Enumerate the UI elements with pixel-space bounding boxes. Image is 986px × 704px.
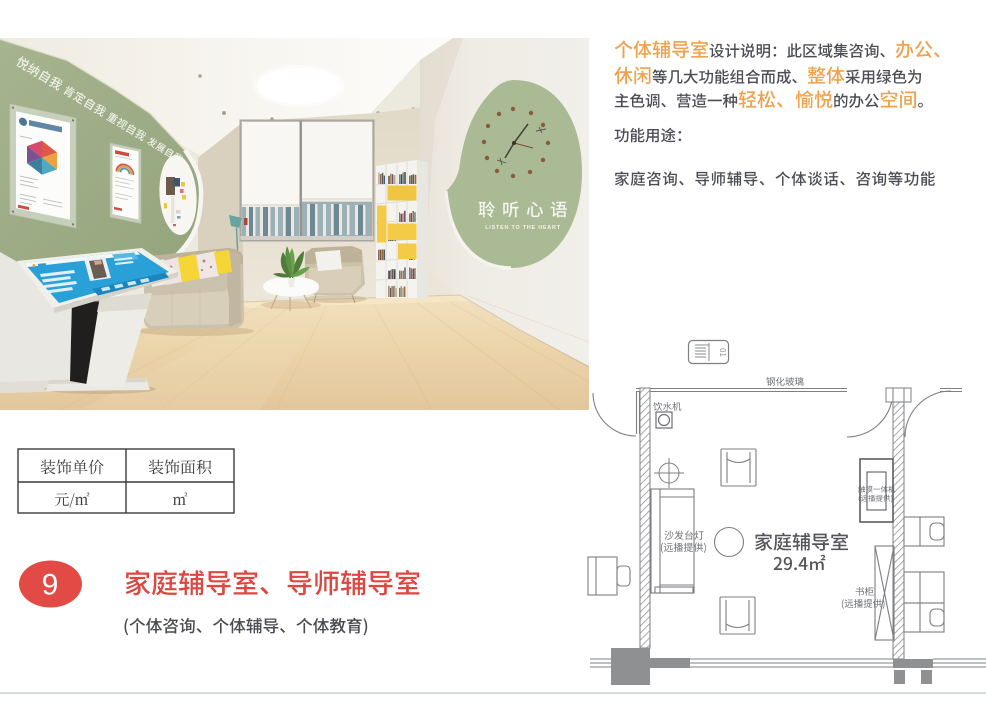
svg-text:LISTEN TO THE HEART: LISTEN TO THE HEART	[485, 225, 561, 231]
svg-text:9: 9	[42, 569, 59, 602]
